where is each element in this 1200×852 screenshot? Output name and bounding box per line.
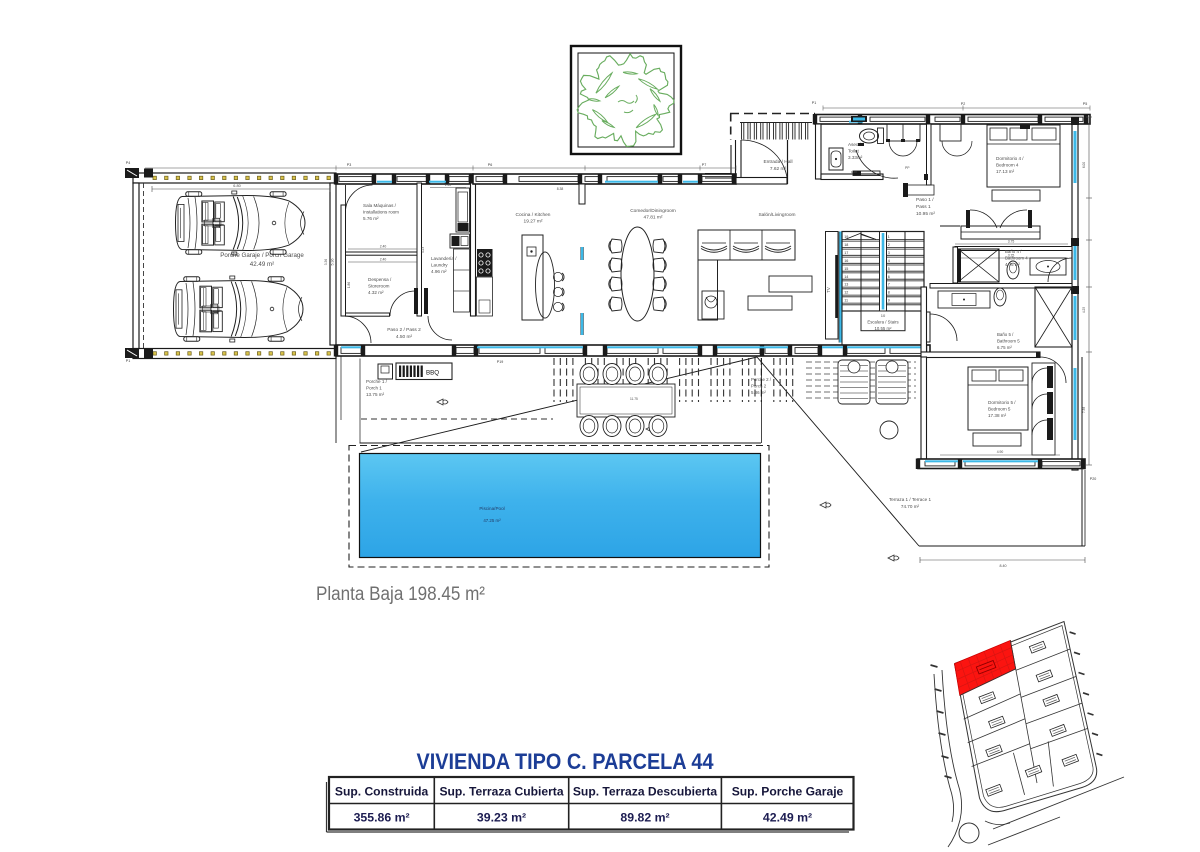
svg-text:Sup. Construida: Sup. Construida [335,785,429,799]
svg-text:16: 16 [844,259,848,263]
svg-text:17.38 m²: 17.38 m² [988,413,1007,418]
svg-text:Sup. Terraza Cubierta: Sup. Terraza Cubierta [439,785,563,799]
svg-text:Lavandería /: Lavandería / [431,256,457,261]
svg-text:1.86: 1.86 [347,282,351,288]
svg-text:5.76 m²: 5.76 m² [363,216,379,221]
svg-text:42.49 m²: 42.49 m² [763,811,812,825]
svg-text:3: 3 [888,251,890,255]
svg-text:Paso 2 / Pass 2: Paso 2 / Pass 2 [387,327,421,333]
svg-text:VIVIENDA TIPO C. PARCELA 44: VIVIENDA TIPO C. PARCELA 44 [417,749,714,774]
svg-text:Bathroom 5: Bathroom 5 [997,339,1020,344]
svg-text:Laundry: Laundry [431,263,448,268]
svg-text:13: 13 [844,283,848,287]
svg-text:Sup. Porche Garaje: Sup. Porche Garaje [732,785,844,799]
svg-text:Despensa /: Despensa / [368,277,392,282]
svg-text:Baño 5 /: Baño 5 / [997,332,1014,337]
svg-text:47.25 m²: 47.25 m² [483,518,501,523]
svg-text:10.95 m²: 10.95 m² [916,211,935,217]
svg-text:Porch 1: Porch 1 [366,386,382,391]
svg-text:10: 10 [881,313,886,318]
svg-text:Bathroom 4: Bathroom 4 [1005,256,1028,261]
svg-text:Installations room: Installations room [363,210,399,215]
svg-text:14: 14 [844,275,848,279]
svg-text:15: 15 [844,267,848,271]
svg-text:8.40: 8.40 [1000,564,1007,568]
svg-text:17.13 m²: 17.13 m² [996,169,1015,174]
svg-text:6.75 m²: 6.75 m² [997,345,1012,350]
svg-text:P20: P20 [1090,477,1096,481]
svg-text:4.50 m²: 4.50 m² [396,334,413,340]
svg-text:8: 8 [888,291,890,295]
svg-text:74.70 m²: 74.70 m² [901,504,920,509]
svg-text:47.81 m²: 47.81 m² [644,215,663,221]
svg-text:P4: P4 [126,161,130,165]
svg-text:2.40: 2.40 [380,258,387,262]
svg-text:Paso 1 /: Paso 1 / [916,197,934,203]
svg-text:19.27 m²: 19.27 m² [524,219,543,225]
svg-text:BBQ: BBQ [426,370,439,377]
svg-text:6.00: 6.00 [1082,162,1086,168]
svg-text:13.75 m²: 13.75 m² [366,392,385,397]
svg-text:11: 11 [844,299,848,303]
svg-text:TV: TV [826,287,831,293]
svg-text:Escalera / Stairs: Escalera / Stairs [867,320,898,325]
svg-text:4.25: 4.25 [1082,307,1086,313]
svg-text:P5: P5 [1083,102,1087,106]
svg-text:355.86 m²: 355.86 m² [354,811,410,825]
svg-text:P3: P3 [347,163,351,167]
svg-text:11.75: 11.75 [630,397,638,401]
svg-text:P1: P1 [126,359,130,363]
svg-text:Pass 1: Pass 1 [916,204,931,210]
svg-text:8.38: 8.38 [557,187,564,191]
svg-text:1.48: 1.48 [851,170,857,174]
svg-text:Toilet: Toilet [848,149,859,154]
svg-text:Bedroom 5: Bedroom 5 [988,407,1011,412]
svg-text:42.49 m²: 42.49 m² [250,261,274,268]
svg-text:2.40: 2.40 [380,245,387,249]
svg-text:Piscina/Pool: Piscina/Pool [479,506,504,511]
svg-text:3.36: 3.36 [324,259,328,266]
svg-text:9: 9 [888,299,890,303]
svg-text:PP: PP [905,166,910,170]
svg-text:Dormitorio 5 /: Dormitorio 5 / [988,400,1016,405]
svg-text:7.62 m²: 7.62 m² [770,166,787,172]
svg-text:6: 6 [888,275,890,279]
svg-text:4.96 m²: 4.96 m² [431,269,447,274]
svg-text:2: 2 [888,243,890,247]
svg-text:Baño 4 /: Baño 4 / [1005,249,1022,254]
svg-text:4.32 m²: 4.32 m² [368,290,384,295]
svg-text:39.23 m²: 39.23 m² [477,811,526,825]
svg-text:17: 17 [844,251,848,255]
svg-text:Storeroom: Storeroom [368,284,390,289]
svg-text:1.40: 1.40 [445,183,452,187]
svg-text:Terraza 1 / Terrace 1: Terraza 1 / Terrace 1 [889,497,931,502]
svg-text:7.38: 7.38 [1082,407,1086,413]
svg-text:Planta Baja 198.45 m²: Planta Baja 198.45 m² [316,584,485,605]
svg-text:6.80: 6.80 [233,184,240,188]
svg-text:Sala Máquinas /: Sala Máquinas / [363,203,397,208]
svg-text:7: 7 [888,283,890,287]
svg-text:5: 5 [888,267,890,271]
svg-text:5.86 m²: 5.86 m² [751,390,766,395]
svg-text:10.55 m²: 10.55 m² [875,326,893,331]
svg-text:1: 1 [888,235,890,239]
svg-text:4.90: 4.90 [997,450,1004,454]
svg-text:Porche Garaje / Porch Garage: Porche Garaje / Porch Garage [220,252,304,259]
svg-text:Porche 1 /: Porche 1 / [366,379,388,384]
svg-text:5.36: 5.36 [331,259,335,266]
svg-text:Cocina / Kitchen: Cocina / Kitchen [516,212,551,218]
svg-text:18: 18 [844,243,848,247]
svg-text:4.75 m²: 4.75 m² [1005,262,1020,267]
svg-text:P7: P7 [702,163,706,167]
svg-text:Comedor/Diningroom: Comedor/Diningroom [630,208,676,214]
svg-text:Bedroom 4: Bedroom 4 [996,163,1019,168]
svg-text:Sup. Terraza Descubierta: Sup. Terraza Descubierta [573,785,718,799]
svg-text:12: 12 [844,291,848,295]
svg-text:89.82 m²: 89.82 m² [620,811,669,825]
svg-text:P19: P19 [497,360,503,364]
svg-text:4.23: 4.23 [421,247,425,253]
svg-text:P2: P2 [961,102,965,106]
svg-text:P1: P1 [812,101,816,105]
svg-text:4: 4 [888,259,890,263]
svg-text:P6: P6 [488,163,492,167]
svg-text:3.75: 3.75 [1008,240,1015,244]
svg-text:Dormitorio 4 /: Dormitorio 4 / [996,156,1024,161]
svg-text:Porch 2: Porch 2 [751,384,767,389]
svg-text:Entrada / Hall: Entrada / Hall [763,159,792,165]
svg-text:Salón/Livingroom: Salón/Livingroom [758,212,795,218]
